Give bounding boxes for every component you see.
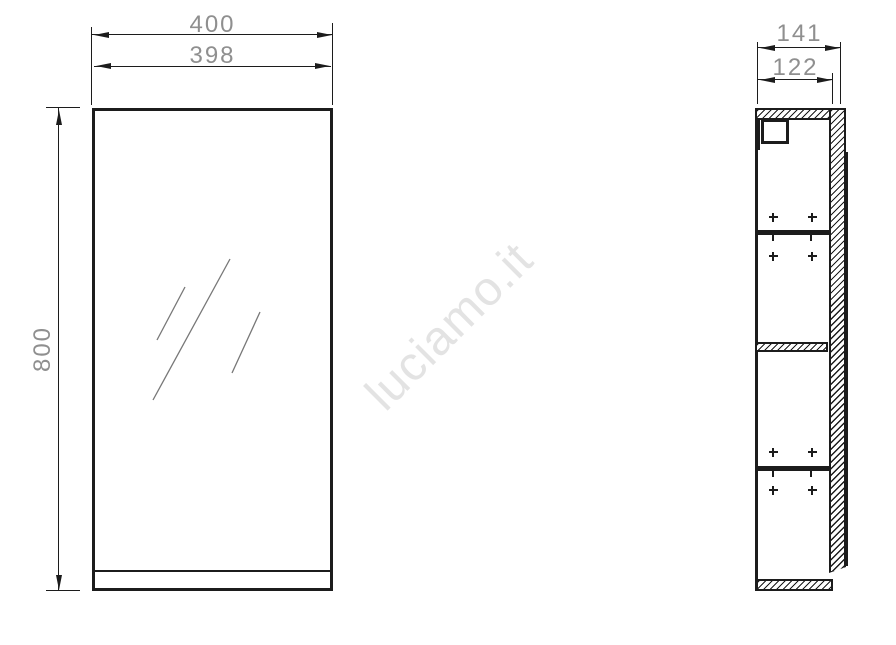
shelf-pin [772, 235, 774, 241]
dim-800-ext-top [46, 107, 80, 108]
side-bottom-panel [756, 579, 833, 591]
dim-141-ext-right [840, 42, 841, 104]
side-mirror-pane [845, 152, 848, 566]
shelf-hole-mark [769, 486, 778, 495]
shelf-hole-mark [808, 252, 817, 261]
watermark-text: luciamo.it [287, 164, 612, 489]
shelf-hole-mark [808, 213, 817, 222]
dim-800-arrow-down [56, 575, 62, 590]
dim-398-label: 398 [92, 42, 333, 70]
side-adjustable-shelf-2 [757, 466, 829, 471]
shelf-pin [810, 235, 812, 241]
shelf-hole-mark [808, 486, 817, 495]
dim-400-label: 400 [92, 11, 333, 39]
dim-800-line [58, 108, 59, 591]
dim-141-label: 141 [758, 20, 841, 48]
side-adjustable-shelf-1 [757, 230, 829, 235]
shelf-pin [772, 471, 774, 477]
shelf-hole-mark [808, 448, 817, 457]
shelf-hole-mark [769, 213, 778, 222]
technical-drawing-canvas: luciamo.it 400 398 800 [0, 0, 896, 645]
dim-122-label: 122 [758, 54, 833, 82]
side-mirror-door [829, 108, 846, 573]
side-fixed-shelf [755, 342, 828, 352]
dim-800-ext-bottom [46, 590, 80, 591]
shelf-pin [810, 471, 812, 477]
shelf-hole-mark [769, 252, 778, 261]
glass-reflection-lines [140, 250, 270, 410]
dim-800-arrow-up [56, 110, 62, 125]
shelf-hole-mark [769, 448, 778, 457]
side-hanging-bracket [761, 119, 789, 144]
dim-800-label: 800 [29, 302, 57, 396]
front-bottom-panel-edge [95, 570, 330, 572]
